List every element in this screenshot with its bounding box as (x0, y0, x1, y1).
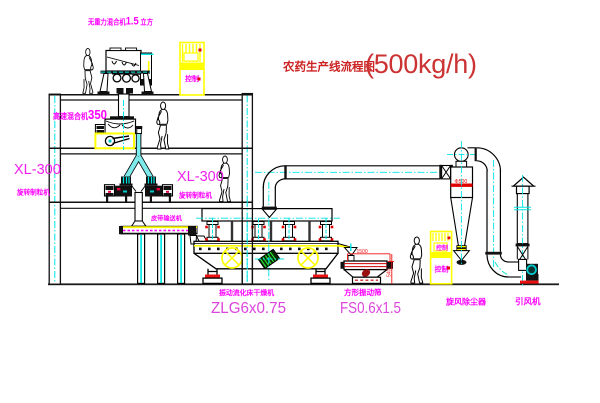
svg-text:旋转制粒机: 旋转制粒机 (16, 188, 50, 197)
svg-text:控制: 控制 (435, 265, 449, 274)
svg-text:540: 540 (387, 268, 393, 277)
svg-text:旋风除尘器: 旋风除尘器 (445, 297, 487, 307)
svg-text:FS0.6x1.5: FS0.6x1.5 (340, 300, 401, 317)
svg-text:控制: 控制 (436, 244, 448, 252)
svg-text:控制: 控制 (185, 74, 199, 83)
svg-text:皮带输送机: 皮带输送机 (150, 215, 183, 223)
svg-text:方形振动筛: 方形振动筛 (344, 287, 382, 297)
svg-text:振动流化床干燥机: 振动流化床干燥机 (219, 288, 274, 297)
svg-text:无重力混合机1.5 立方: 无重力混合机1.5 立方 (87, 16, 153, 28)
svg-text:XL-300: XL-300 (177, 169, 224, 185)
svg-text:1500: 1500 (357, 249, 368, 255)
svg-text:XL-300: XL-300 (14, 162, 61, 178)
svg-text:ZLG6x0.75: ZLG6x0.75 (211, 300, 286, 317)
svg-text:旋转制粒机: 旋转制粒机 (178, 191, 212, 200)
svg-text:引风机: 引风机 (515, 297, 541, 307)
svg-text:农药生产线流程图: 农药生产线流程图 (282, 60, 375, 74)
svg-text:(500kg/h): (500kg/h) (365, 49, 477, 79)
